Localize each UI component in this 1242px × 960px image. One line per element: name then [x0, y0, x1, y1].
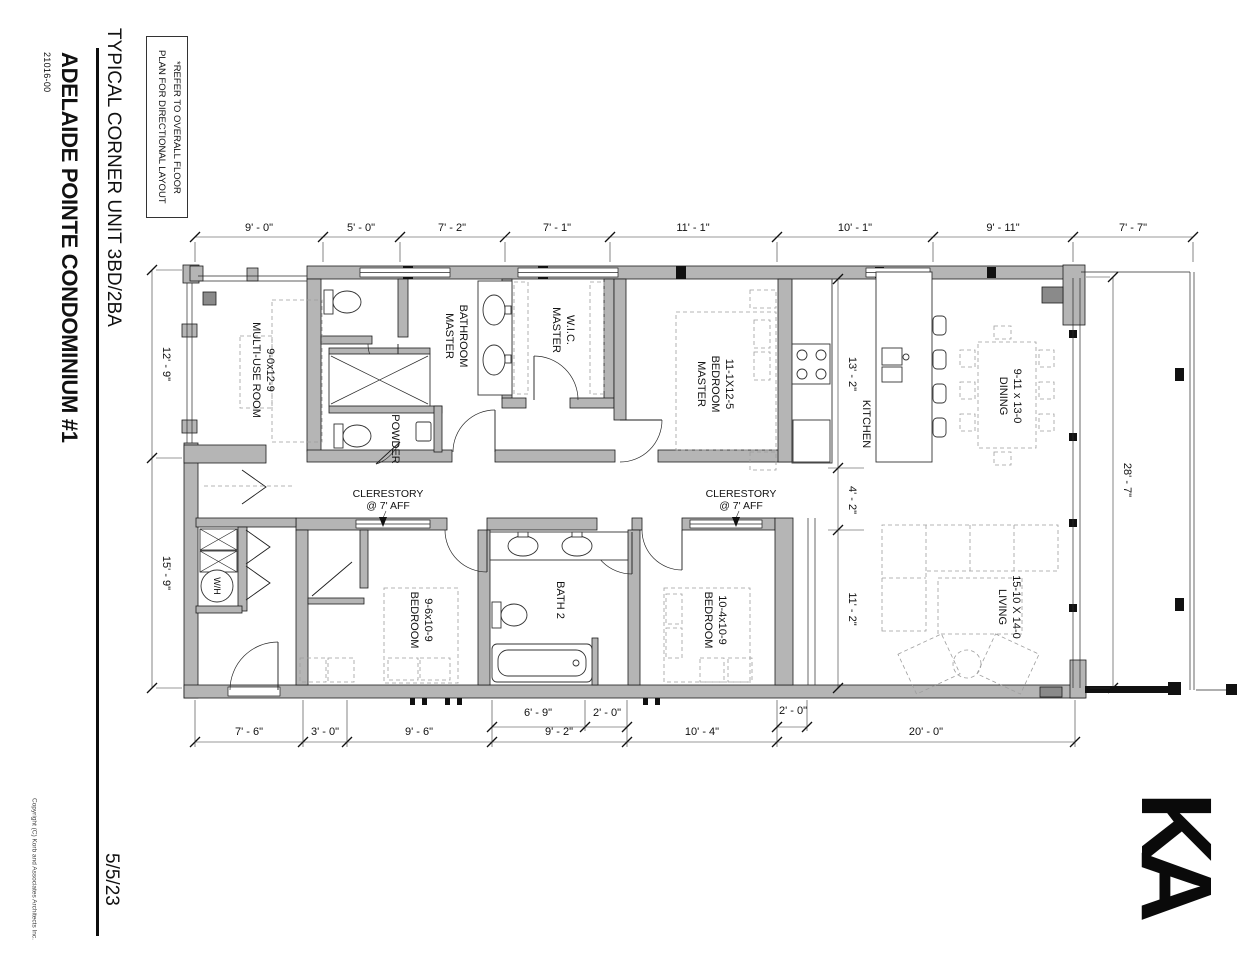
- dim-label: 9' - 0": [245, 222, 273, 234]
- note-line-2: PLAN FOR DIRECTIONAL LAYOUT: [154, 41, 169, 213]
- dim-label: 12' - 9": [160, 347, 172, 381]
- dim-label: 4' - 2": [846, 486, 858, 514]
- dim-label: 6' - 9": [524, 707, 552, 719]
- water-heater-label: W/H: [212, 577, 222, 595]
- bar-stool: [933, 418, 946, 437]
- sink-powder: [416, 422, 431, 441]
- dim-label: 13' - 2": [846, 357, 858, 391]
- dim-label: 2' - 0": [593, 707, 621, 719]
- walls: [183, 265, 1086, 698]
- room-size-multi-use: 9-0x12-9: [264, 348, 276, 391]
- dim-label: 10' - 4": [685, 726, 719, 738]
- room-size-living: 15-10 X 14-0: [1010, 575, 1022, 639]
- dim-label: 10' - 1": [838, 222, 872, 234]
- bar-stool: [933, 384, 946, 403]
- dim-label: 7' - 7": [1119, 222, 1147, 234]
- clerestory-note: @ 7' AFF: [366, 500, 410, 512]
- dim-label: 9' - 11": [986, 222, 1019, 234]
- dim-label: 3' - 0": [311, 726, 339, 738]
- coffee-table: [938, 578, 1022, 634]
- project-number: 21016-00: [42, 52, 51, 92]
- copyright-text: Copyright (C) Korb and Associates Archit…: [30, 798, 37, 940]
- clerestory-note: CLERESTORY: [353, 488, 424, 500]
- drawing-sheet: Copyright (C) Korb and Associates Archit…: [0, 0, 1242, 960]
- toilet-powder: [334, 424, 343, 448]
- toilet-wc: [324, 290, 333, 314]
- room-label-master-bed: BEDROOM: [709, 356, 721, 413]
- bed1: [384, 588, 458, 683]
- room-size-master-bed: 11-1X12-5: [723, 359, 735, 410]
- dim-label: 7' - 2": [438, 222, 466, 234]
- room-label-wic: MASTER: [550, 307, 562, 353]
- room-label-master-bath: MASTER: [443, 313, 455, 359]
- room-label-wic: W.I.C.: [564, 315, 576, 345]
- room-size-dining: 9-11 x 13-0: [1011, 369, 1023, 424]
- clerestory-note: CLERESTORY: [706, 488, 777, 500]
- dim-label: 7' - 6": [235, 726, 263, 738]
- dim-label: 9' - 6": [405, 726, 433, 738]
- sheet-date: 5/5/23: [102, 853, 121, 906]
- titleblock-rule: [96, 48, 99, 936]
- dim-label: 7' - 1": [543, 222, 571, 234]
- room-label-kitchen: KITCHEN: [860, 400, 872, 448]
- room-size-bedroom1: 9-6x10-9: [422, 598, 434, 641]
- sheet-title: TYPICAL CORNER UNIT 3BD/2BA: [104, 28, 123, 327]
- bar-stool: [933, 350, 946, 369]
- dim-label: 9' - 2": [545, 726, 573, 738]
- dim-label: 5' - 0": [347, 222, 375, 234]
- dim-label: 2' - 0": [779, 705, 807, 717]
- dim-label: 11' - 1": [676, 222, 709, 234]
- dim-label: 11' - 2": [846, 592, 858, 625]
- room-size-bedroom2: 10-4x10-9: [716, 595, 728, 645]
- direction-note: *REFER TO OVERALL FLOOR PLAN FOR DIRECTI…: [146, 36, 188, 218]
- room-label-living: LIVING: [996, 589, 1008, 625]
- balcony: [1081, 272, 1237, 695]
- room-label-dining: DINING: [997, 377, 1009, 416]
- room-label-multi-use: MULTI-USE ROOM: [250, 322, 262, 418]
- toilet-bath2: [492, 602, 501, 628]
- project-name: ADELAIDE POINTE CONDOMINIUM #1: [58, 52, 80, 443]
- room-label-bedroom1: BEDROOM: [408, 592, 420, 649]
- room-label-master-bed: MASTER: [695, 361, 707, 407]
- room-label-master-bath: BATHROOM: [457, 305, 469, 368]
- note-line-1: *REFER TO OVERALL FLOOR: [169, 41, 184, 213]
- dim-label: 20' - 0": [909, 726, 943, 738]
- side-table: [953, 650, 981, 678]
- room-label-powder: POWDER: [389, 414, 401, 464]
- clerestory-note: @ 7' AFF: [719, 500, 763, 512]
- island-sink: [882, 348, 902, 365]
- room-label-bedroom2: BEDROOM: [702, 592, 714, 649]
- architect-logo: KA: [1126, 792, 1226, 908]
- dim-label: 15' - 9": [160, 556, 172, 590]
- room-label-bath2: BATH 2: [554, 581, 566, 619]
- dim-label: 28' - 7": [1121, 463, 1133, 497]
- bar-stool: [933, 316, 946, 335]
- refrigerator: [793, 420, 830, 462]
